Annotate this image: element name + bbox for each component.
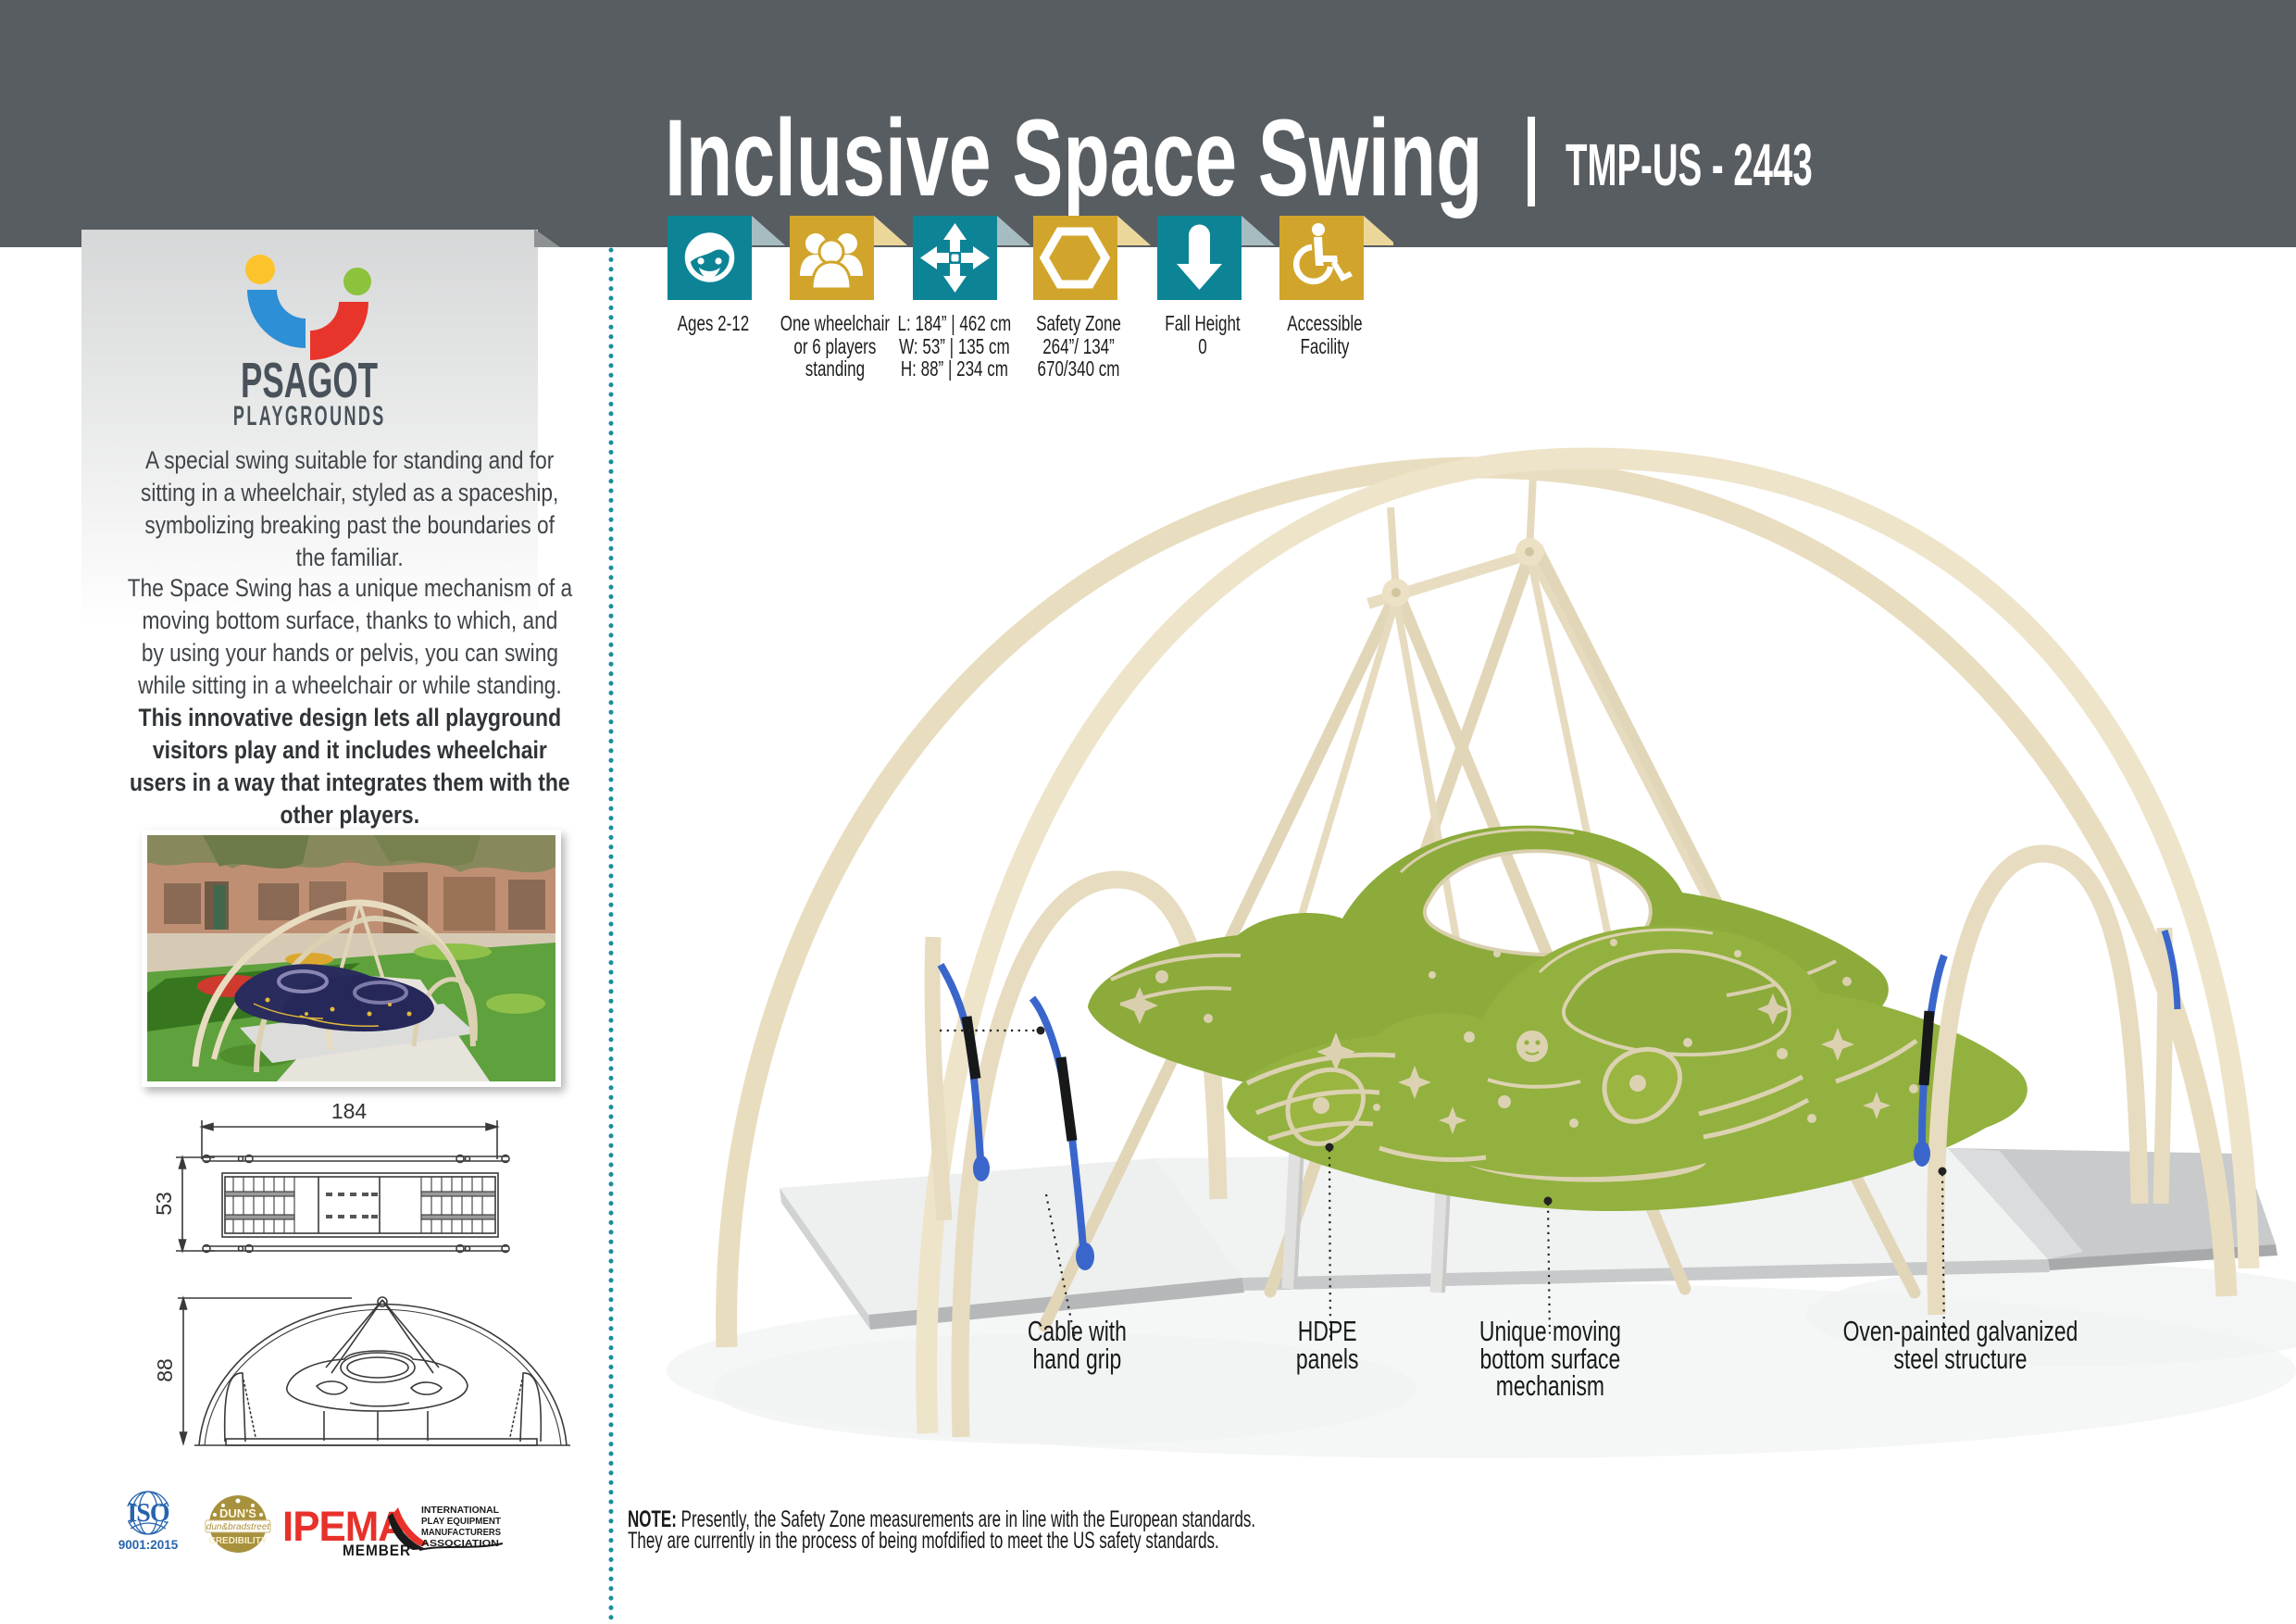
svg-text:DUN'S: DUN'S xyxy=(219,1506,256,1520)
svg-text:184: 184 xyxy=(331,1099,368,1123)
svg-text:53: 53 xyxy=(152,1192,176,1216)
svg-text:MEMBER: MEMBER xyxy=(343,1542,411,1559)
svg-text:MANUFACTURERS: MANUFACTURERS xyxy=(421,1527,501,1538)
svg-text:88: 88 xyxy=(153,1358,177,1382)
svg-text:9001:2015: 9001:2015 xyxy=(119,1538,179,1552)
svg-text:PLAY EQUIPMENT: PLAY EQUIPMENT xyxy=(421,1516,502,1527)
svg-text:CREDIBILITY: CREDIBILITY xyxy=(209,1536,268,1546)
svg-text:ISO: ISO xyxy=(127,1499,168,1528)
svg-text:INTERNATIONAL: INTERNATIONAL xyxy=(421,1505,500,1516)
svg-text:ASSOCIATION: ASSOCIATION xyxy=(421,1538,499,1549)
svg-text:dun&bradstreet: dun&bradstreet xyxy=(206,1522,271,1532)
